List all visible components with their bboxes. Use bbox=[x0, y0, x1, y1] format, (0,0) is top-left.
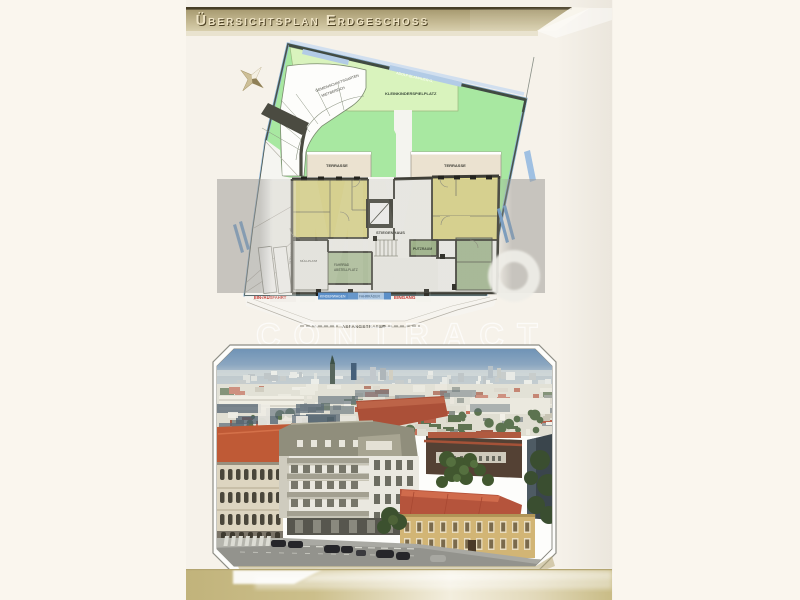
svg-text:KLEINKINDERSPIELPLATZ: KLEINKINDERSPIELPLATZ bbox=[385, 91, 437, 96]
svg-text:KINDERWAGEN: KINDERWAGEN bbox=[320, 295, 346, 299]
svg-text:TERRASSE: TERRASSE bbox=[326, 163, 348, 168]
svg-text:EINGANG: EINGANG bbox=[394, 295, 416, 300]
svg-text:Übersichtsplan Erdgeschoss: Übersichtsplan Erdgeschoss bbox=[196, 12, 430, 29]
svg-text:TERRASSE: TERRASSE bbox=[444, 163, 466, 168]
